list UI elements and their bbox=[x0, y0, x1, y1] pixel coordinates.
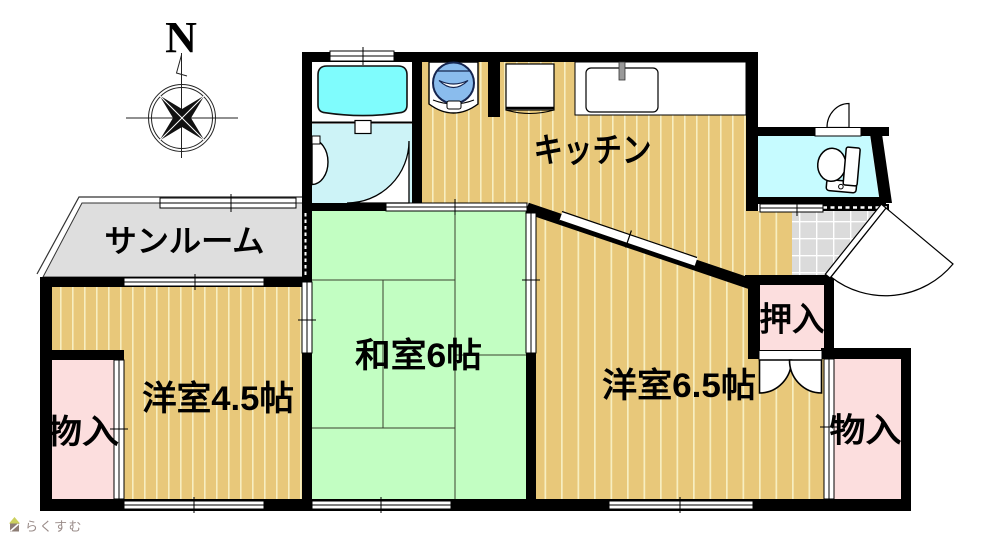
svg-text:物入: 物入 bbox=[830, 412, 902, 449]
svg-text:洋室6.5帖: 洋室6.5帖 bbox=[602, 366, 756, 405]
svg-text:洋室4.5帖: 洋室4.5帖 bbox=[142, 379, 294, 418]
svg-text:キッチン: キッチン bbox=[534, 132, 652, 170]
svg-text:物入: 物入 bbox=[45, 413, 119, 450]
svg-text:N: N bbox=[165, 13, 197, 62]
svg-text:らくすむ: らくすむ bbox=[25, 519, 83, 534]
svg-text:サンルーム: サンルーム bbox=[105, 224, 265, 259]
svg-text:和室6帖: 和室6帖 bbox=[355, 336, 482, 375]
svg-text:押入: 押入 bbox=[760, 301, 825, 338]
